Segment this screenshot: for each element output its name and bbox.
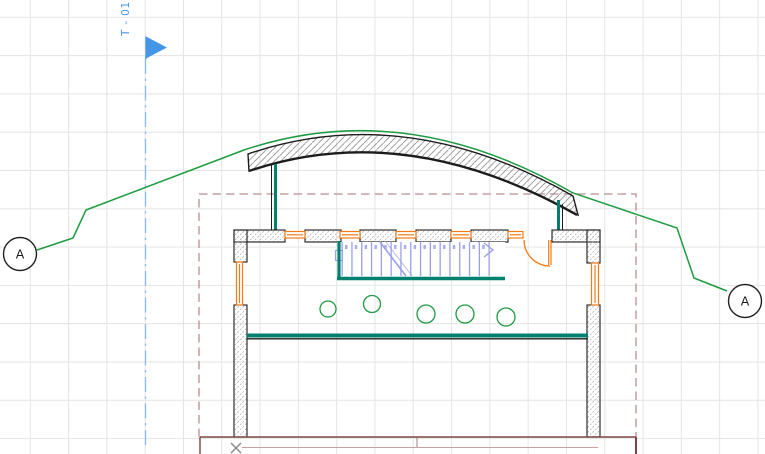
window-symbol[interactable]	[237, 262, 243, 305]
window-symbol[interactable]	[508, 232, 523, 239]
wall-segment[interactable]	[234, 305, 247, 437]
terrace-edge[interactable]	[200, 437, 636, 454]
roof-support-left[interactable]	[272, 164, 276, 230]
column-circle[interactable]	[320, 301, 336, 317]
wall-segment[interactable]	[471, 230, 508, 242]
column-circle[interactable]	[497, 308, 515, 326]
interior-wall[interactable]	[247, 336, 588, 339]
elevation-marker-right[interactable]: A	[729, 285, 762, 318]
wall-segment[interactable]	[234, 230, 247, 262]
window-symbol[interactable]	[592, 263, 599, 305]
door-arc	[524, 240, 550, 266]
column-circle[interactable]	[417, 305, 435, 323]
window-symbol[interactable]	[396, 232, 416, 239]
window-symbol[interactable]	[285, 232, 305, 239]
wall-segment[interactable]	[360, 230, 396, 242]
wall-segment[interactable]	[305, 230, 341, 242]
elevation-marker-label: A	[16, 247, 25, 262]
elevation-marker-label: A	[741, 294, 750, 309]
column-circles[interactable]	[320, 296, 515, 327]
roof-band[interactable]	[248, 135, 578, 215]
flag-triangle-icon[interactable]	[146, 37, 167, 59]
x-marker-icon[interactable]	[231, 443, 241, 453]
door-swing[interactable]	[524, 240, 551, 266]
section-marker[interactable]: T - 01	[120, 1, 167, 59]
column-circle[interactable]	[456, 305, 474, 323]
staircase[interactable]	[336, 241, 506, 280]
roof-section[interactable]	[248, 135, 578, 215]
section-flag-label: T - 01	[120, 1, 132, 37]
column-circle[interactable]	[364, 296, 381, 313]
wall-segment[interactable]	[587, 305, 600, 437]
drawing-layer: T - 01 A A	[0, 0, 765, 454]
elevation-marker-left[interactable]: A	[4, 238, 37, 271]
wall-segment[interactable]	[587, 230, 600, 263]
wall-segment[interactable]	[416, 230, 451, 242]
window-symbol[interactable]	[451, 232, 471, 239]
drawing-canvas[interactable]: T - 01 A A	[0, 0, 765, 454]
window-symbol[interactable]	[340, 232, 360, 239]
